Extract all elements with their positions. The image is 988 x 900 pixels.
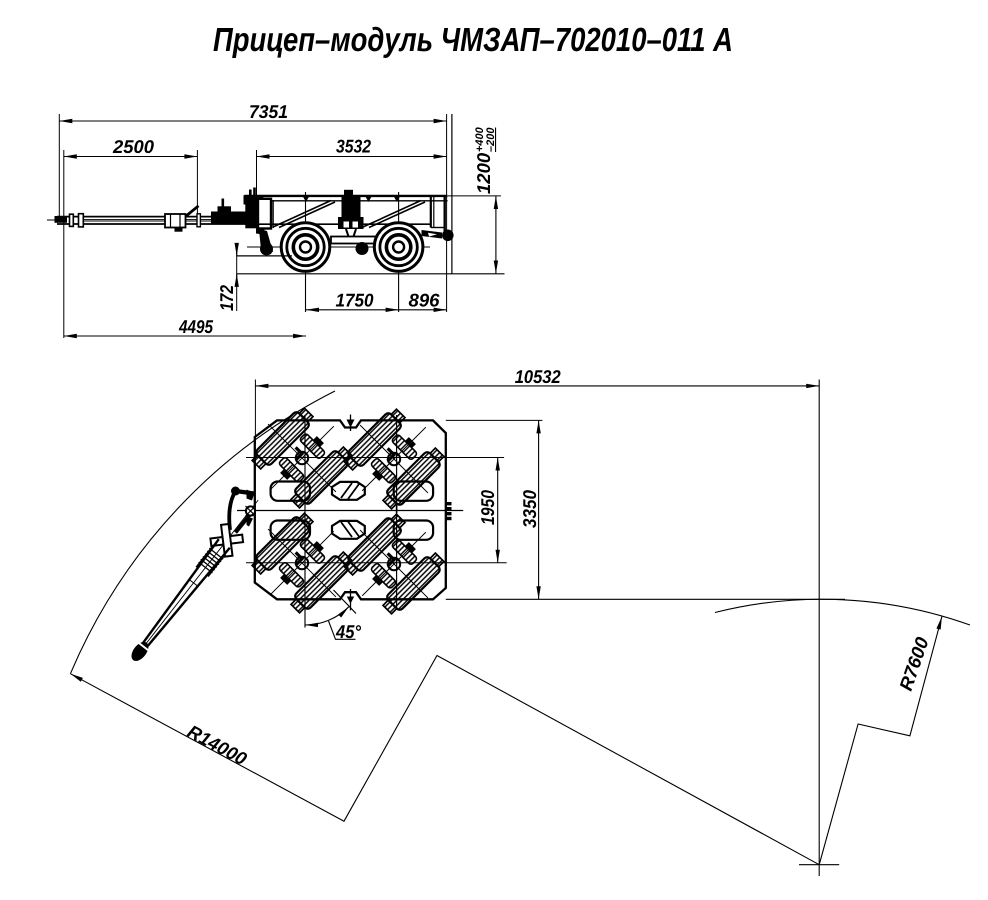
svg-text:1750: 1750 [336,290,375,311]
svg-text:4495: 4495 [178,316,213,337]
svg-text:896: 896 [409,290,441,311]
svg-text:1200: 1200 [473,152,494,194]
svg-text:3350: 3350 [519,489,540,528]
svg-text:3532: 3532 [336,136,372,157]
svg-text:172: 172 [216,284,237,311]
svg-text:–200: –200 [485,127,497,152]
svg-text:1950: 1950 [477,489,498,525]
svg-text:10532: 10532 [515,366,562,387]
svg-text:2500: 2500 [112,136,155,157]
svg-text:Прицеп–модуль ЧМЗАП–702010–01: Прицеп–модуль ЧМЗАП–702010–011 А [213,22,733,59]
svg-text:7351: 7351 [249,101,288,122]
svg-text:45°: 45° [335,621,361,642]
